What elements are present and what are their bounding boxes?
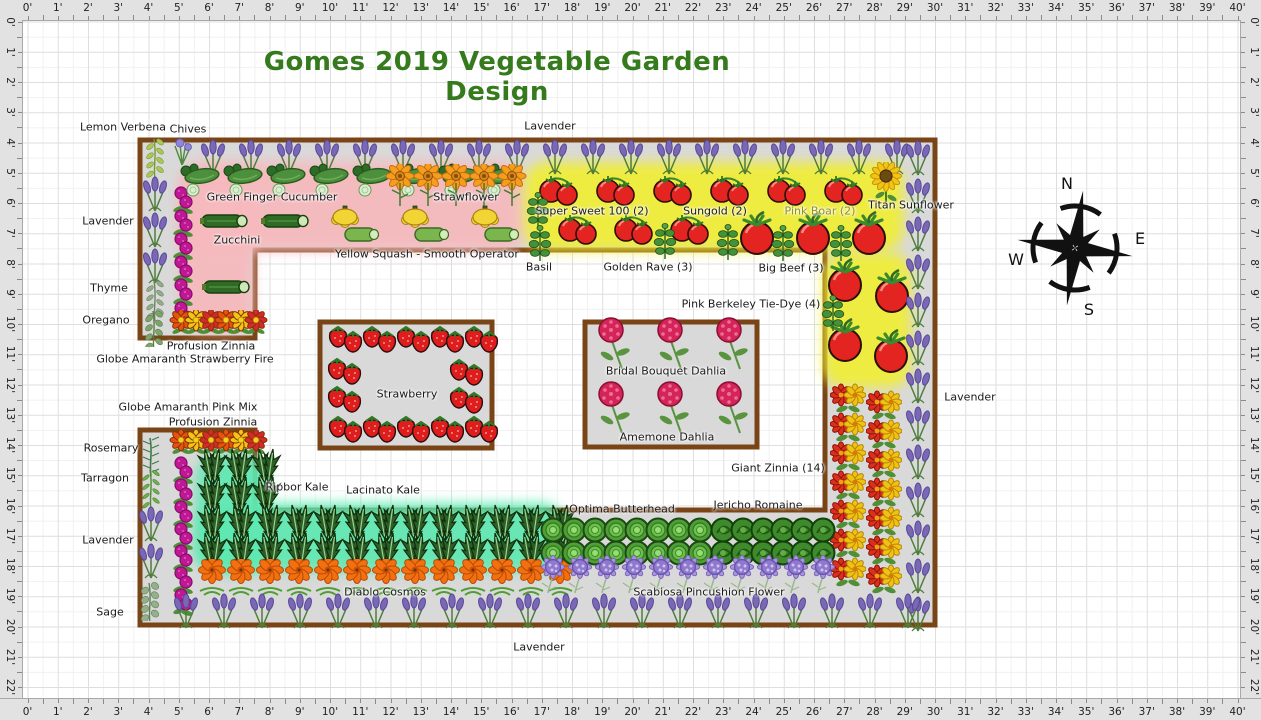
ruler-label: 11' <box>347 2 373 14</box>
plant-label: Strawberry <box>377 388 438 401</box>
ruler-label: 22' <box>4 674 16 700</box>
ruler-label: 7' <box>1248 220 1260 246</box>
ruler-label: 15' <box>468 706 494 718</box>
plant-label: Strawflower <box>433 191 499 204</box>
ruler-top: 0'1'2'3'4'5'6'7'8'9'10'11'12'13'14'15'16… <box>0 0 1261 21</box>
plant-label: Thyme <box>90 282 128 295</box>
ruler-label: 16' <box>499 2 525 14</box>
plant-label: Scabiosa Pincushion Flower <box>633 586 784 599</box>
ruler-label: 21' <box>650 706 676 718</box>
ruler-label: 13' <box>408 2 434 14</box>
ruler-left: 0'1'2'3'4'5'6'7'8'9'10'11'12'13'14'15'16… <box>0 20 23 698</box>
ruler-label: 9' <box>4 281 16 307</box>
ruler-right: 0'1'2'3'4'5'6'7'8'9'10'11'12'13'14'15'16… <box>1240 20 1261 698</box>
compass-e: E <box>1135 229 1145 248</box>
ruler-label: 22' <box>680 2 706 14</box>
plant-label: Lavender <box>82 534 133 547</box>
compass-s: S <box>1084 300 1094 319</box>
ruler-label: 35' <box>1073 2 1099 14</box>
ruler-label: 14' <box>4 432 16 458</box>
ruler-label: 3' <box>4 99 16 125</box>
ruler-label: 6' <box>1248 190 1260 216</box>
ruler-label: 5' <box>4 160 16 186</box>
ruler-label: 17' <box>1248 523 1260 549</box>
ruler-label: 11' <box>1248 341 1260 367</box>
ruler-label: 29' <box>892 2 918 14</box>
ruler-label: 23' <box>710 2 736 14</box>
ruler-label: 24' <box>741 706 767 718</box>
ruler-label: 19' <box>589 2 615 14</box>
ruler-label: 9' <box>287 706 313 718</box>
plant-label: Lavender <box>944 391 995 404</box>
ruler-label: 3' <box>105 2 131 14</box>
ruler-label: 1' <box>45 706 71 718</box>
ruler-label: 14' <box>438 2 464 14</box>
ruler-label: 15' <box>468 2 494 14</box>
ruler-label: 14' <box>438 706 464 718</box>
ruler-label: 6' <box>4 190 16 216</box>
ruler-label: 11' <box>347 706 373 718</box>
ruler-label: 37' <box>1134 2 1160 14</box>
plant-label: Titan Sunflower <box>868 199 954 212</box>
ruler-label: 4' <box>4 130 16 156</box>
ruler-label: 12' <box>378 2 404 14</box>
ruler-label: 36' <box>1104 2 1130 14</box>
ruler-label: 19' <box>589 706 615 718</box>
ruler-label: 21' <box>650 2 676 14</box>
ruler-label: 17' <box>529 2 555 14</box>
ruler-label: 5' <box>166 706 192 718</box>
plant-label: Lavender <box>524 120 575 133</box>
plant-label: Lavender <box>513 641 564 654</box>
ruler-label: 2' <box>75 2 101 14</box>
ruler-label: 3' <box>105 706 131 718</box>
ruler-label: 30' <box>922 706 948 718</box>
ruler-label: 18' <box>559 2 585 14</box>
ruler-label: 32' <box>983 706 1009 718</box>
plant-label: Giant Zinnia (14) <box>731 462 825 475</box>
ruler-label: 9' <box>1248 281 1260 307</box>
ruler-label: 28' <box>862 2 888 14</box>
ruler-label: 8' <box>1248 251 1260 277</box>
plant-label: Sungold (2) <box>683 205 747 218</box>
ruler-label: 5' <box>166 2 192 14</box>
compass-star <box>1009 182 1140 313</box>
plant-label: Globe Amaranth Pink Mix <box>119 401 258 414</box>
compass-w: W <box>1008 250 1024 269</box>
ruler-label: 31' <box>952 2 978 14</box>
ruler-label: 10' <box>4 311 16 337</box>
plant-label: Bridal Bouquet Dahlia <box>606 365 726 378</box>
ruler-label: 20' <box>620 706 646 718</box>
ruler-label: 16' <box>4 493 16 519</box>
ruler-label: 22' <box>1248 674 1260 700</box>
plant-label: Zucchini <box>214 234 261 247</box>
ruler-label: 8' <box>257 706 283 718</box>
ruler-label: 10' <box>317 2 343 14</box>
ruler-label: 15' <box>4 462 16 488</box>
ruler-label: 32' <box>983 2 1009 14</box>
ruler-label: 39' <box>1194 2 1220 14</box>
ruler-label: 39' <box>1194 706 1220 718</box>
plant-label: Super Sweet 100 (2) <box>535 205 648 218</box>
plant-label: Optima Butterhead <box>569 503 675 516</box>
ruler-label: 33' <box>1013 2 1039 14</box>
ruler-label: 24' <box>741 2 767 14</box>
ruler-label: 1' <box>4 39 16 65</box>
ruler-label: 31' <box>952 706 978 718</box>
ruler-label: 13' <box>4 402 16 428</box>
ruler-label: 40' <box>1225 706 1251 718</box>
ruler-label: 13' <box>408 706 434 718</box>
ruler-label: 15' <box>1248 462 1260 488</box>
ruler-label: 6' <box>196 706 222 718</box>
ruler-bottom: 0'1'2'3'4'5'6'7'8'9'10'11'12'13'14'15'16… <box>0 698 1261 720</box>
ruler-label: 23' <box>710 706 736 718</box>
ruler-label: 34' <box>1043 706 1069 718</box>
ruler-label: 26' <box>801 706 827 718</box>
plant-label: Oregano <box>82 314 129 327</box>
labels-layer: Lemon VerbenaChivesLavenderGreen Finger … <box>0 0 1261 720</box>
ruler-label: 6' <box>196 2 222 14</box>
ruler-label: 35' <box>1073 706 1099 718</box>
plant-label: Pink Boar (2) <box>785 205 856 218</box>
ruler-label: 18' <box>4 553 16 579</box>
ruler-label: 8' <box>257 2 283 14</box>
ruler-label: 30' <box>922 2 948 14</box>
ruler-label: 20' <box>620 2 646 14</box>
ruler-label: 16' <box>499 706 525 718</box>
ruler-label: 5' <box>1248 160 1260 186</box>
plant-label: Green Finger Cucumber <box>207 191 338 204</box>
ruler-label: 0' <box>15 706 41 718</box>
ruler-label: 37' <box>1134 706 1160 718</box>
ruler-label: 19' <box>4 583 16 609</box>
ruler-label: 4' <box>136 2 162 14</box>
plant-label: Tarragon <box>81 472 129 485</box>
garden-planner-canvas: Lemon VerbenaChivesLavenderGreen Finger … <box>0 0 1261 720</box>
ruler-label: 40' <box>1225 2 1251 14</box>
plant-label: Amemone Dahlia <box>620 431 715 444</box>
ruler-label: 21' <box>1248 644 1260 670</box>
ruler-label: 2' <box>1248 69 1260 95</box>
compass-rose: N E W S <box>1005 170 1150 322</box>
ruler-label: 1' <box>1248 39 1260 65</box>
ruler-label: 20' <box>1248 614 1260 640</box>
ruler-label: 18' <box>1248 553 1260 579</box>
ruler-label: 25' <box>771 706 797 718</box>
ruler-label: 2' <box>4 69 16 95</box>
ruler-label: 12' <box>378 706 404 718</box>
ruler-label: 13' <box>1248 402 1260 428</box>
ruler-label: 8' <box>4 251 16 277</box>
plant-label: Chives <box>170 123 207 136</box>
plant-label: Lacinato Kale <box>346 484 420 497</box>
ruler-label: 7' <box>226 706 252 718</box>
ruler-label: 4' <box>1248 130 1260 156</box>
ruler-label: 21' <box>4 644 16 670</box>
ruler-label: 0' <box>4 9 16 35</box>
plant-label: Basil <box>526 261 552 274</box>
ruler-label: 12' <box>1248 372 1260 398</box>
ruler-label: 36' <box>1104 706 1130 718</box>
ruler-label: 1' <box>45 2 71 14</box>
ruler-label: 38' <box>1164 706 1190 718</box>
ruler-label: 22' <box>680 706 706 718</box>
ruler-label: 33' <box>1013 706 1039 718</box>
ruler-label: 12' <box>4 372 16 398</box>
ruler-label: 14' <box>1248 432 1260 458</box>
ruler-label: 28' <box>862 706 888 718</box>
ruler-label: 4' <box>136 706 162 718</box>
ruler-label: 10' <box>1248 311 1260 337</box>
plant-label: Lavender <box>82 215 133 228</box>
ruler-label: 34' <box>1043 2 1069 14</box>
ruler-label: 19' <box>1248 583 1260 609</box>
ruler-label: 17' <box>4 523 16 549</box>
plant-label: Ripbor Kale <box>266 481 329 494</box>
plant-label: Golden Rave (3) <box>603 261 692 274</box>
ruler-label: 16' <box>1248 493 1260 519</box>
ruler-label: 38' <box>1164 2 1190 14</box>
ruler-label: 3' <box>1248 99 1260 125</box>
ruler-label: 20' <box>4 614 16 640</box>
ruler-label: 10' <box>317 706 343 718</box>
ruler-label: 27' <box>831 2 857 14</box>
plant-label: Profusion Zinnia <box>167 340 256 353</box>
ruler-label: 26' <box>801 2 827 14</box>
ruler-label: 0' <box>15 2 41 14</box>
plant-label: Yellow Squash - Smooth Operator <box>335 248 519 261</box>
plant-label: Jericho Romaine <box>714 499 803 512</box>
plan-title: Gomes 2019 Vegetable Garden Design <box>247 47 747 107</box>
plant-label: Lemon Verbena <box>80 121 166 134</box>
plant-label: Diablo Cosmos <box>344 586 426 599</box>
compass-n: N <box>1061 174 1073 193</box>
plant-label: Rosemary <box>84 442 139 455</box>
ruler-label: 18' <box>559 706 585 718</box>
plant-label: Profusion Zinnia <box>169 416 258 429</box>
ruler-label: 9' <box>287 2 313 14</box>
ruler-label: 11' <box>4 341 16 367</box>
ruler-label: 2' <box>75 706 101 718</box>
plant-label: Pink Berkeley Tie-Dye (4) <box>682 298 821 311</box>
ruler-label: 7' <box>226 2 252 14</box>
plant-label: Globe Amaranth Strawberry Fire <box>96 353 273 366</box>
ruler-label: 25' <box>771 2 797 14</box>
ruler-label: 29' <box>892 706 918 718</box>
ruler-label: 27' <box>831 706 857 718</box>
plant-label: Sage <box>96 606 123 619</box>
ruler-label: 17' <box>529 706 555 718</box>
ruler-label: 0' <box>1248 9 1260 35</box>
plant-label: Big Beef (3) <box>758 262 823 275</box>
ruler-label: 7' <box>4 220 16 246</box>
